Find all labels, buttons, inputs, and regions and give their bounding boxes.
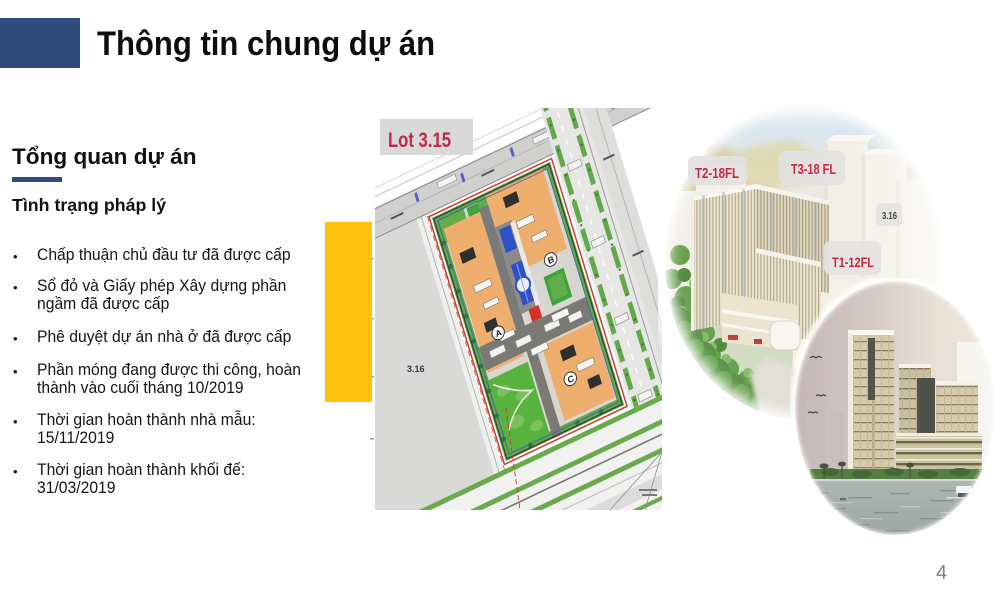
svg-text:T2-18FL: T2-18FL	[695, 166, 739, 182]
svg-text:3.16: 3.16	[407, 364, 425, 374]
svg-text:3.16: 3.16	[882, 211, 897, 222]
svg-text:T3-18 FL: T3-18 FL	[791, 162, 836, 178]
svg-text:T1-12FL: T1-12FL	[832, 254, 874, 270]
svg-text:Lot 3.15: Lot 3.15	[388, 129, 451, 152]
